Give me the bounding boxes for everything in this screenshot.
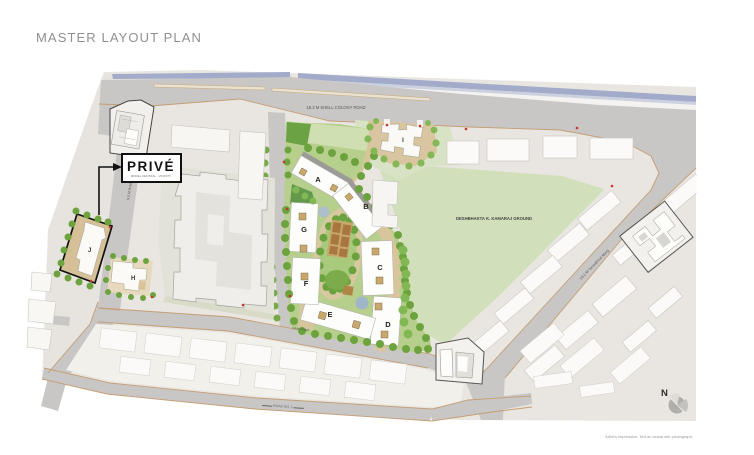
svg-text:18.3 M SHELL COLONY ROAD: 18.3 M SHELL COLONY ROAD	[306, 105, 365, 110]
svg-text:G: G	[301, 225, 307, 234]
svg-text:Artist's impression. Not an ac: Artist's impression. Not an actual site …	[605, 434, 693, 439]
svg-text:J: J	[88, 248, 91, 254]
svg-text:D: D	[385, 320, 391, 329]
svg-text:N: N	[661, 388, 668, 399]
svg-text:PRIVÉ: PRIVÉ	[127, 159, 175, 174]
svg-text:E: E	[327, 310, 332, 319]
svg-text:MODEL CENTRAL - VICINITY: MODEL CENTRAL - VICINITY	[131, 174, 172, 178]
svg-text:C: C	[377, 263, 383, 272]
svg-text:A: A	[315, 175, 321, 184]
svg-text:DESHBHAKTA K. KAMARAJ GROUND: DESHBHAKTA K. KAMARAJ GROUND	[456, 216, 532, 221]
svg-text:B: B	[363, 202, 369, 211]
svg-text:F: F	[304, 279, 309, 288]
svg-text:H: H	[131, 276, 135, 282]
